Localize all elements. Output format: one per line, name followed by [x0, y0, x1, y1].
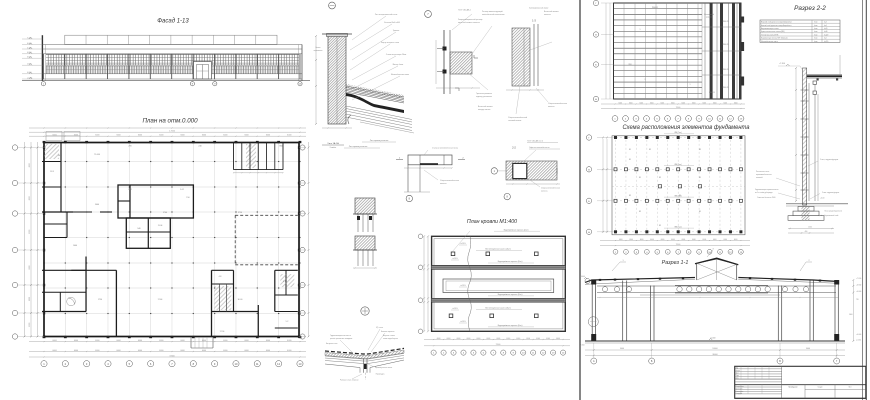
- svg-text:30.00: 30.00: [238, 299, 243, 301]
- svg-text:6000: 6000: [661, 239, 665, 241]
- svg-text:Выносной элемент: Выносной элемент: [478, 105, 493, 108]
- svg-text:h мм: h мм: [814, 25, 817, 27]
- svg-text:Отмостка бетонная 1500: Отмостка бетонная 1500: [757, 197, 775, 199]
- svg-text:Ленточная стена: Ленточная стена: [756, 171, 769, 173]
- svg-text:2: 2: [808, 260, 809, 262]
- svg-text:h мм: h мм: [814, 34, 817, 36]
- svg-text:Ф2: Ф2: [629, 194, 631, 197]
- svg-text:2: 2: [645, 79, 646, 81]
- svg-text:6000: 6000: [181, 350, 185, 352]
- svg-text:ПК60.15: ПК60.15: [722, 44, 728, 46]
- svg-text:Лист кровли усиления: Лист кровли усиления: [370, 140, 388, 142]
- svg-text:Сборка железобетонная: Сборка железобетонная: [440, 180, 459, 182]
- svg-text:подклад утеплителя: подклад утеплителя: [476, 96, 492, 98]
- svg-text:-0.150: -0.150: [27, 77, 32, 79]
- svg-text:6000: 6000: [618, 102, 622, 104]
- svg-text:чаша водосборная: чаша водосборная: [383, 338, 398, 340]
- svg-text:панелей: панелей: [756, 176, 763, 179]
- svg-text:6000: 6000: [496, 338, 500, 340]
- svg-text:6000: 6000: [287, 340, 291, 342]
- svg-text:6000: 6000: [702, 102, 706, 104]
- svg-text:5740: 5740: [163, 212, 167, 214]
- svg-text:6000: 6000: [650, 102, 654, 104]
- svg-text:6000: 6000: [245, 350, 249, 352]
- svg-text:Проверил: Проверил: [736, 389, 743, 391]
- svg-text:+6.000: +6.000: [856, 291, 861, 293]
- svg-text:6000: 6000: [287, 134, 291, 136]
- svg-text:71.060: 71.060: [94, 154, 100, 156]
- svg-text:расчёт крепления невидимо: расчёт крепления невидимо: [330, 338, 352, 340]
- svg-text:Разрез 2-2: Разрез 2-2: [794, 5, 826, 12]
- svg-text:Туманка: Туманка: [393, 30, 400, 32]
- svg-text:ФМ (7шт): ФМ (7шт): [674, 225, 682, 228]
- svg-text:ПК60.15: ПК60.15: [722, 21, 728, 23]
- svg-text:ПК60.12: ПК60.12: [652, 7, 658, 9]
- svg-text:Фартук из оцинк. стали: Фартук из оцинк. стали: [381, 41, 399, 44]
- svg-text:Сборка железобетонная: Сборка железобетонная: [548, 103, 567, 105]
- svg-text:1000: 1000: [73, 245, 77, 247]
- svg-text:6000: 6000: [650, 239, 654, 241]
- svg-text:стеновой панели: стеновой панели: [508, 119, 521, 122]
- svg-text:Костыли 40х4 t=600: Костыли 40х4 t=600: [384, 21, 400, 24]
- svg-text:h=30: h=30: [824, 31, 828, 33]
- svg-text:+7.200: +7.200: [779, 63, 785, 65]
- svg-text:Минер. белит: Минер. белит: [393, 64, 404, 66]
- svg-text:Ф2: Ф2: [649, 148, 651, 151]
- svg-text:5400: 5400: [849, 314, 853, 316]
- svg-text:6000: 6000: [723, 102, 727, 104]
- svg-text:3750: 3750: [238, 212, 242, 214]
- svg-text:ПК60.15: ПК60.15: [722, 87, 728, 89]
- svg-text:колонны: колонны: [544, 14, 551, 16]
- svg-text:6000: 6000: [536, 338, 540, 340]
- svg-text:5.400: 5.400: [27, 47, 32, 49]
- svg-text:6000: 6000: [159, 350, 163, 352]
- svg-text:6000: 6000: [723, 239, 727, 241]
- svg-text:6000: 6000: [245, 340, 249, 342]
- svg-text:6000: 6000: [713, 239, 717, 241]
- svg-text:1,7560: 1,7560: [169, 130, 175, 132]
- svg-text:ГОСТ 530х-АВ-1: ГОСТ 530х-АВ-1: [458, 9, 471, 12]
- svg-text:ПК60.15: ПК60.15: [722, 69, 728, 71]
- svg-text:Ф2: Ф2: [639, 210, 641, 213]
- svg-text:Сборка железобетонной: Сборка железобетонной: [508, 116, 527, 119]
- svg-text:Разрез 1-1: Разрез 1-1: [662, 260, 689, 266]
- svg-text:9000: 9000: [620, 348, 624, 350]
- svg-text:6000: 6000: [671, 102, 675, 104]
- svg-text:h=220: h=220: [824, 41, 828, 43]
- svg-text:Разработал: Разработал: [736, 386, 744, 388]
- svg-text:6000: 6000: [29, 230, 31, 234]
- svg-text:Сборка железобетонная: Сборка железобетонная: [541, 188, 560, 190]
- svg-text:6000: 6000: [95, 134, 99, 136]
- svg-text:Ф1: Ф1: [629, 148, 631, 151]
- svg-text:150: 150: [186, 197, 189, 199]
- svg-text:6000: 6000: [467, 338, 471, 340]
- svg-text:6000: 6000: [53, 340, 57, 342]
- svg-text:1: 1: [622, 260, 623, 262]
- svg-text:6000: 6000: [713, 102, 717, 104]
- svg-text:Ф2: Ф2: [659, 176, 661, 179]
- svg-text:6000: 6000: [486, 338, 490, 340]
- svg-text:6.600: 6.600: [27, 43, 32, 45]
- svg-text:6000: 6000: [692, 102, 696, 104]
- svg-text:6000: 6000: [117, 350, 121, 352]
- svg-text:ФМ (7шт): ФМ (7шт): [674, 163, 682, 166]
- svg-text:240: 240: [198, 146, 201, 148]
- svg-text:6000: 6000: [703, 239, 707, 241]
- svg-text:6000: 6000: [95, 340, 99, 342]
- svg-text:h=120: h=120: [824, 34, 828, 36]
- svg-text:Утеплитель плиты ППЖ: Утеплитель плиты ППЖ: [761, 34, 779, 36]
- svg-text:2-2: 2-2: [512, 146, 516, 150]
- svg-text:6000: 6000: [506, 338, 510, 340]
- svg-text:Промежуточная связь: Промежуточная связь: [375, 367, 392, 369]
- svg-text:ПК8: ПК8: [629, 64, 632, 66]
- svg-text:11.04: 11.04: [158, 225, 163, 227]
- svg-text:Кол.уч: Кол.уч: [736, 370, 740, 372]
- svg-text:6000: 6000: [138, 350, 142, 352]
- svg-text:колёсабельный наполнитель: колёсабельный наполнитель: [482, 13, 505, 16]
- svg-text:ПК60.15: ПК60.15: [709, 92, 715, 94]
- svg-text:Газобет: Газобет: [330, 147, 337, 149]
- svg-text:6000: 6000: [734, 102, 738, 104]
- svg-text:Офисная железобетонная: Офисная железобетонная: [529, 146, 550, 149]
- svg-text:400: 400: [805, 231, 808, 233]
- svg-text:72000: 72000: [676, 107, 681, 109]
- svg-text:Промздание: Промздание: [788, 387, 797, 389]
- svg-text:i=2,5%: i=2,5%: [452, 258, 458, 260]
- svg-text:Лист из оцинкованной стали: Лист из оцинкованной стали: [375, 13, 397, 16]
- svg-text:участок: участок: [706, 17, 712, 19]
- svg-text:План на отм.0.000: План на отм.0.000: [142, 118, 198, 125]
- svg-text:0.600: 0.600: [27, 72, 32, 74]
- svg-text:6000: 6000: [138, 340, 142, 342]
- svg-text:i=2,5%: i=2,5%: [460, 243, 466, 245]
- svg-text:h мм: h мм: [814, 28, 817, 30]
- svg-text:Утвердил: Утвердил: [736, 393, 743, 395]
- svg-text:6000: 6000: [556, 338, 560, 340]
- svg-text:5.02: 5.02: [180, 189, 184, 191]
- svg-text:6000: 6000: [640, 239, 644, 241]
- svg-text:6000: 6000: [516, 338, 520, 340]
- svg-text:Н.контроль: Н.контроль: [736, 391, 744, 393]
- svg-text:9000: 9000: [806, 348, 810, 350]
- svg-text:6000: 6000: [734, 239, 738, 241]
- svg-text:6000: 6000: [29, 266, 31, 270]
- svg-text:Лист: Лист: [736, 373, 739, 375]
- svg-text:ГОСТ 530х-АВ №1:4: ГОСТ 530х-АВ №1:4: [527, 140, 543, 143]
- svg-text:i=2,5%: i=2,5%: [460, 321, 466, 323]
- svg-text:6000: 6000: [266, 340, 270, 342]
- svg-text:Железобетонная плита: Железобетонная плита: [391, 74, 409, 76]
- svg-text:колонна: колонна: [440, 183, 446, 185]
- svg-text:6000: 6000: [629, 239, 633, 241]
- svg-text:Завулканизированный раствор: Завулканизированный раствор: [458, 18, 482, 21]
- svg-text:1500: 1500: [808, 227, 812, 229]
- svg-text:18.3: 18.3: [50, 171, 54, 173]
- svg-text:Битумная сеть: Битумная сеть: [326, 343, 338, 345]
- svg-text:Подп: Подп: [736, 375, 740, 377]
- svg-text:колодца панель: колодца панель: [478, 109, 491, 111]
- svg-text:6000: 6000: [74, 340, 78, 342]
- svg-text:72000: 72000: [496, 344, 501, 346]
- svg-text:+0.000: +0.000: [856, 334, 861, 336]
- svg-text:1: 1: [690, 84, 691, 86]
- svg-text:Ф1: Ф1: [699, 176, 701, 179]
- svg-text:17.56: 17.56: [220, 331, 225, 333]
- svg-text:6000: 6000: [639, 102, 643, 104]
- svg-text:6000: 6000: [619, 239, 623, 241]
- svg-text:Пароизоляция пленка ПЭТ 100к: Пароизоляция пленка ПЭТ 100кв.мм: [761, 38, 788, 40]
- svg-text:Лист: Лист: [848, 387, 851, 389]
- svg-text:5.2: 5.2: [286, 321, 289, 323]
- svg-text:План кровли М1:400: План кровли М1:400: [467, 219, 517, 225]
- svg-text:Схема расположения элементов ф: Схема расположения элементов фундамента: [623, 123, 750, 131]
- svg-text:7.200: 7.200: [27, 37, 32, 39]
- svg-text:4.8: 4.8: [219, 276, 222, 278]
- svg-text:6000: 6000: [159, 340, 163, 342]
- svg-text:6000: 6000: [682, 239, 686, 241]
- svg-text:i=2,5%: i=2,5%: [452, 308, 458, 310]
- svg-text:4.800: 4.800: [27, 52, 32, 54]
- svg-text:колонна: колонна: [548, 106, 554, 108]
- svg-text:72000: 72000: [676, 244, 681, 246]
- svg-text:+6.600: +6.600: [580, 276, 585, 278]
- svg-text:1-3: 1-3: [532, 19, 536, 23]
- svg-text:6000: 6000: [95, 350, 99, 352]
- svg-text:940: 940: [137, 228, 140, 230]
- svg-text:6000: 6000: [29, 297, 31, 301]
- svg-text:Выравнивающая стяжка: Выравнивающая стяжка: [761, 28, 779, 30]
- svg-text:6000: 6000: [53, 350, 57, 352]
- svg-text:Ф1: Ф1: [699, 210, 701, 213]
- svg-text:6000: 6000: [29, 196, 31, 200]
- svg-text:3000: 3000: [58, 155, 62, 157]
- svg-text:Прокладка: Прокладка: [376, 374, 385, 376]
- svg-text:6000: 6000: [74, 350, 78, 352]
- svg-text:6000: 6000: [457, 338, 461, 340]
- svg-text:6000: 6000: [287, 350, 291, 352]
- svg-text:Ветрозг. стакан: Ветрозг. стакан: [383, 335, 395, 337]
- svg-text:Стальная железобетонная балка: Стальная железобетонная балка: [432, 148, 458, 150]
- svg-text:h=20: h=20: [824, 28, 828, 30]
- svg-text:выносной элемент колонны: выносной элемент колонны: [458, 21, 481, 24]
- svg-text:керамзитобетонных: керамзитобетонных: [756, 174, 772, 176]
- svg-text:Цементно-песчаная стяжка (М0): Цементно-песчаная стяжка (М0): [761, 31, 785, 33]
- svg-text:Ф2: Ф2: [699, 148, 701, 151]
- svg-text:6000: 6000: [223, 134, 227, 136]
- svg-text:290: 290: [128, 146, 131, 148]
- svg-text:6000: 6000: [202, 350, 206, 352]
- svg-text:6000: 6000: [692, 239, 696, 241]
- svg-text:колонна: колонна: [541, 191, 547, 193]
- svg-text:17.64: 17.64: [158, 299, 163, 301]
- svg-text:Рабочая сталь плавная: Рабочая сталь плавная: [340, 379, 359, 381]
- svg-text:ФМ (7шт): ФМ (7шт): [674, 131, 682, 134]
- svg-text:+6.900: +6.900: [856, 284, 861, 286]
- svg-text:h мм: h мм: [814, 31, 817, 33]
- svg-text:6000: 6000: [117, 134, 121, 136]
- svg-text:6000: 6000: [477, 338, 481, 340]
- svg-text:6000: 6000: [437, 338, 441, 340]
- svg-text:860: 860: [279, 146, 282, 148]
- svg-text:h мм: h мм: [814, 22, 817, 24]
- svg-text:Фасад 1-13: Фасад 1-13: [157, 19, 189, 25]
- svg-text:Железобетонная плита: Железобетонная плита: [761, 41, 778, 43]
- svg-text:6000: 6000: [546, 338, 550, 340]
- svg-text:h мм: h мм: [814, 38, 817, 40]
- svg-text:6000: 6000: [447, 338, 451, 340]
- svg-text:Ф1: Ф1: [639, 176, 641, 179]
- svg-text:h мм: h мм: [814, 41, 817, 43]
- svg-text:Раствор компенсирующий: Раствор компенсирующий: [482, 10, 503, 13]
- svg-text:6000: 6000: [29, 163, 31, 167]
- svg-text:6000: 6000: [181, 134, 185, 136]
- svg-text:Ф1: Ф1: [679, 194, 681, 197]
- svg-text:36000: 36000: [712, 354, 717, 356]
- svg-text:6000: 6000: [245, 134, 249, 136]
- svg-text:Ф1: Ф1: [629, 158, 631, 161]
- svg-text:Узел 1А-1А: Узел 1А-1А: [327, 142, 339, 145]
- svg-text:перемычка: перемычка: [314, 50, 323, 52]
- svg-text:6000: 6000: [117, 340, 121, 342]
- svg-text:6000: 6000: [138, 134, 142, 136]
- svg-text:5400: 5400: [95, 204, 99, 206]
- svg-text:1750: 1750: [98, 299, 102, 301]
- svg-text:12.2: 12.2: [128, 189, 132, 191]
- svg-text:Стяжка из раствора 20мм: Стяжка из раствора 20мм: [386, 54, 407, 56]
- svg-text:из 2-х слоёв рубероида: из 2-х слоёв рубероида: [755, 192, 773, 194]
- svg-text:1: 1: [640, 29, 641, 31]
- svg-text:h=2: h=2: [824, 38, 827, 40]
- svg-text:300: 300: [248, 146, 251, 148]
- svg-text:1.800: 1.800: [27, 64, 32, 66]
- svg-text:Изм: Изм: [736, 368, 739, 370]
- svg-text:6000: 6000: [159, 134, 163, 136]
- svg-text:6000: 6000: [681, 102, 685, 104]
- svg-text:3: 3: [712, 249, 713, 251]
- svg-text:3.600: 3.600: [27, 57, 32, 59]
- svg-text:6000: 6000: [202, 134, 206, 136]
- svg-text:6000: 6000: [526, 338, 530, 340]
- svg-text:-0.150: -0.150: [856, 340, 861, 342]
- svg-text:ЦГ стена: ЦГ стена: [376, 327, 383, 329]
- svg-text:6000: 6000: [223, 350, 227, 352]
- svg-text:Лист кровли усиления: Лист кровли усиления: [349, 146, 367, 148]
- svg-text:6000: 6000: [202, 340, 206, 342]
- svg-text:Белая: Белая: [316, 47, 321, 49]
- svg-text:6000: 6000: [660, 102, 664, 104]
- svg-text:Гидроизоляционная масса: Гидроизоляционная масса: [330, 335, 351, 337]
- svg-text:-0.150: -0.150: [580, 345, 585, 347]
- svg-text:Дата: Дата: [736, 378, 739, 380]
- svg-text:8.16: 8.16: [283, 281, 287, 283]
- svg-text:18000: 18000: [712, 348, 717, 350]
- svg-text:Граничная разметка: Граничная разметка: [476, 93, 492, 95]
- svg-text:72000: 72000: [169, 355, 174, 357]
- svg-text:6000: 6000: [223, 340, 227, 342]
- svg-text:6000: 6000: [266, 134, 270, 136]
- svg-text:Гидроизоляция горизонтальная: Гидроизоляция горизонтальная: [755, 189, 779, 191]
- svg-text:6000: 6000: [629, 102, 633, 104]
- svg-text:Боковая воронка: Боковая воронка: [381, 331, 394, 333]
- svg-text:6000: 6000: [29, 323, 31, 327]
- svg-text:720: 720: [856, 299, 859, 301]
- svg-text:h=4: h=4: [824, 22, 827, 24]
- svg-text:+7.200: +7.200: [856, 278, 861, 280]
- svg-text:Стадия: Стадия: [818, 387, 823, 389]
- svg-text:6000: 6000: [671, 239, 675, 241]
- svg-text:+0.00: +0.00: [820, 198, 824, 200]
- svg-text:6000: 6000: [181, 340, 185, 342]
- svg-text:Заблокированный замок: Заблокированный замок: [529, 7, 548, 10]
- svg-text:h=4: h=4: [824, 25, 827, 27]
- svg-text:6000: 6000: [266, 350, 270, 352]
- svg-text:i=2,5%: i=2,5%: [460, 285, 466, 287]
- svg-text:Выносной элемент: Выносной элемент: [544, 10, 559, 13]
- svg-text:Ф2: Ф2: [659, 224, 661, 227]
